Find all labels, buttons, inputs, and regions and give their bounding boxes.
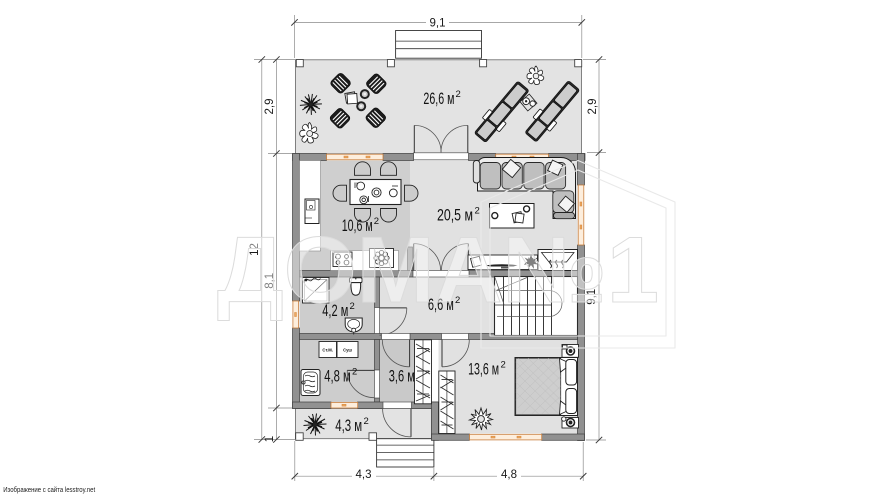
svg-text:2: 2 bbox=[501, 360, 506, 371]
svg-text:2: 2 bbox=[352, 367, 357, 378]
svg-text:Изображение с сайта lesstroy.n: Изображение с сайта lesstroy.net bbox=[3, 485, 96, 494]
svg-text:4,3: 4,3 bbox=[356, 469, 372, 481]
svg-text:3,6 м: 3,6 м bbox=[389, 368, 415, 386]
svg-text:4,3 м: 4,3 м bbox=[335, 417, 362, 435]
svg-text:2,9: 2,9 bbox=[587, 99, 599, 115]
svg-text:1: 1 bbox=[264, 436, 276, 442]
svg-text:ДОМА№1: ДОМА№1 bbox=[217, 217, 659, 322]
svg-text:2: 2 bbox=[364, 416, 369, 427]
svg-text:Суш: Суш bbox=[343, 348, 352, 353]
svg-text:2,9: 2,9 bbox=[264, 99, 276, 115]
svg-text:2: 2 bbox=[475, 206, 480, 217]
svg-text:13,6 м: 13,6 м bbox=[468, 361, 499, 379]
svg-text:Ст.М.: Ст.М. bbox=[322, 348, 333, 353]
svg-text:4,8: 4,8 bbox=[501, 469, 517, 481]
svg-text:9,1: 9,1 bbox=[430, 18, 446, 30]
svg-text:4,8 м: 4,8 м bbox=[324, 368, 351, 386]
svg-text:2: 2 bbox=[456, 89, 461, 100]
svg-text:26,6 м: 26,6 м bbox=[423, 90, 454, 108]
